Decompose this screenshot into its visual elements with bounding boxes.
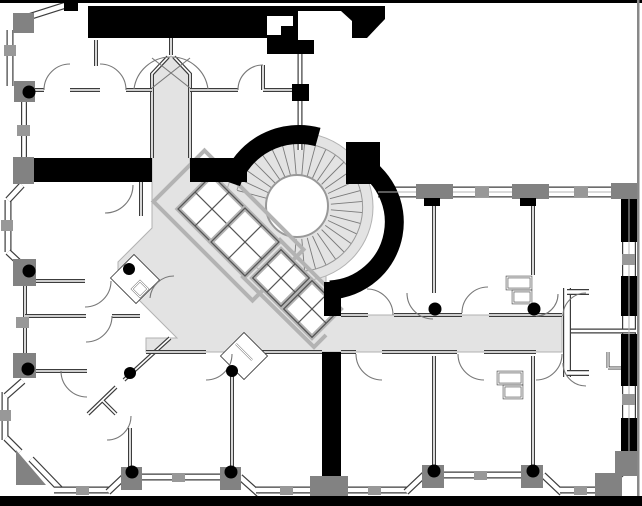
mullion (17, 125, 30, 136)
column (528, 303, 541, 316)
column (226, 365, 238, 377)
mullion (76, 486, 89, 495)
mullion (368, 486, 381, 495)
mullion (622, 254, 635, 265)
mullion (0, 410, 11, 421)
wall-y90-right (190, 65, 300, 90)
column (123, 263, 135, 275)
core-notch-nub (281, 26, 293, 36)
mullion (4, 45, 16, 56)
mullion (280, 486, 293, 495)
door-n-room1 (367, 289, 393, 315)
chase-north-a (507, 277, 531, 289)
door-sw-2 (107, 416, 131, 440)
mullion-tick-n2 (520, 198, 536, 206)
south-diag-4 (543, 475, 562, 493)
chase-south-b (504, 386, 522, 398)
column (428, 465, 441, 478)
mullion (574, 187, 588, 197)
mullion-big-n2 (512, 184, 549, 199)
mullion-tick-n1 (424, 198, 440, 206)
floor-plan-canvas (0, 0, 642, 506)
mullion (172, 473, 185, 482)
mullion (475, 187, 489, 197)
mullion (1, 220, 13, 231)
chase-south-a (498, 372, 522, 384)
door-w-room1 (105, 185, 133, 213)
column (225, 466, 238, 479)
column (23, 265, 36, 278)
chase-south-b (504, 386, 522, 398)
diagonal-wall-sw2 (88, 387, 116, 414)
door-s-room4 (536, 354, 562, 380)
pier-s3 (310, 476, 348, 496)
mullion (574, 486, 587, 495)
mid-wall-west (18, 158, 152, 182)
door-nw-2 (100, 64, 126, 90)
pier-nw (13, 13, 34, 33)
bay-diagonal-w3 (6, 381, 23, 396)
door-sw-1 (61, 371, 87, 397)
frame-right-line (637, 0, 640, 496)
floor-plan-page (0, 0, 642, 506)
column (22, 363, 35, 376)
mullion-big-n1 (416, 184, 453, 199)
door-s-room2 (356, 354, 382, 380)
frame-top-line (0, 0, 642, 3)
door-nw-1 (44, 64, 70, 90)
door-n-room (238, 65, 263, 90)
bay-diagonal-w1 (8, 185, 22, 200)
wall-y90-right (190, 65, 300, 90)
core-vwall-lower (322, 352, 341, 478)
mullion-big-ne (611, 183, 637, 199)
mullion (16, 317, 29, 328)
stem-column-block (292, 84, 309, 101)
column (527, 465, 540, 478)
chase-south-a (498, 372, 522, 384)
pier-se2 (615, 451, 637, 476)
door-s-room3 (458, 354, 484, 380)
door-w-room2 (85, 281, 111, 307)
mullion (474, 471, 487, 480)
pier-w2 (13, 157, 34, 184)
core-vwall-upper (324, 282, 341, 316)
mullion (622, 394, 635, 405)
door-n-room2 (462, 287, 488, 313)
core-shaft-void (298, 11, 352, 40)
column (126, 466, 139, 479)
chase-north-a (507, 277, 531, 289)
column (429, 303, 442, 316)
column (23, 86, 36, 99)
stair-core (266, 175, 328, 237)
frame-bottom-bar (0, 496, 642, 506)
door-w-corridor (86, 316, 112, 342)
column (124, 367, 136, 379)
pier-se1 (595, 473, 622, 496)
chase-north-b (513, 291, 531, 303)
chase-north-b (513, 291, 531, 303)
